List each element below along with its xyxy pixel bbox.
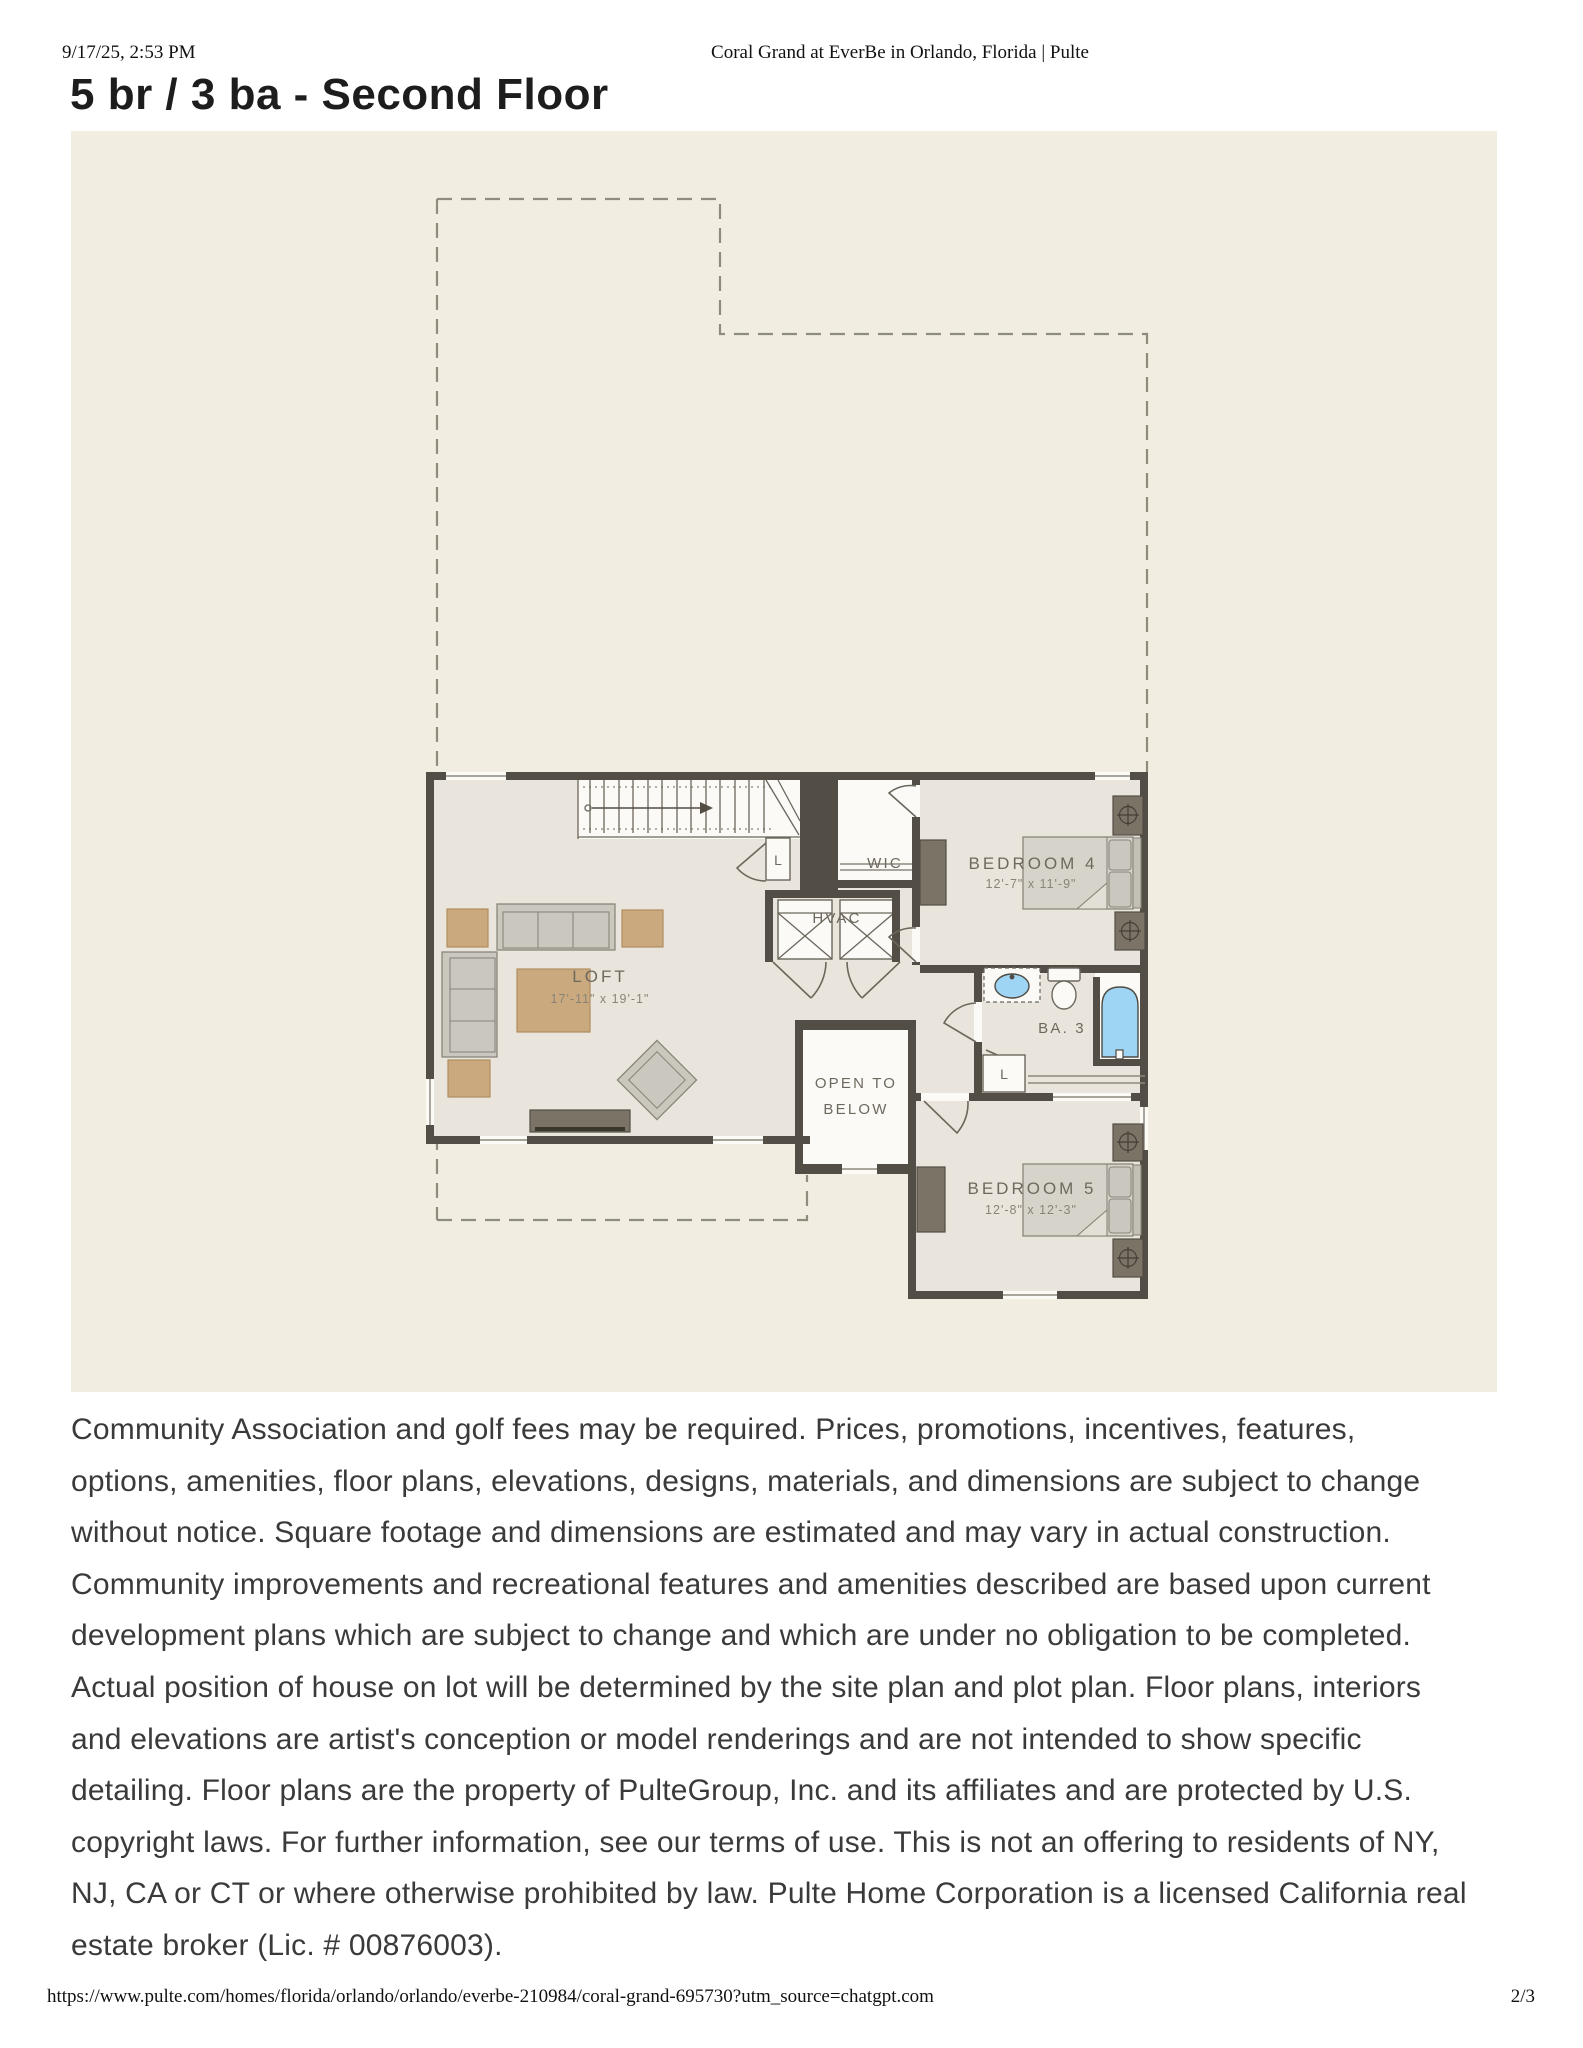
disclaimer-line: options, amenities, floor plans, elevati… bbox=[71, 1456, 1526, 1508]
stairwell bbox=[578, 780, 800, 839]
label-bedroom5: BEDROOM 5 bbox=[967, 1179, 1096, 1198]
open-to-below-void bbox=[803, 1030, 908, 1164]
label-bedroom4: BEDROOM 4 bbox=[968, 854, 1097, 873]
bed-bedroom5 bbox=[1023, 1164, 1141, 1236]
dresser-bedroom4 bbox=[920, 840, 946, 905]
page-title: 5 br / 3 ba - Second Floor bbox=[70, 70, 609, 120]
disclaimer-line: estate broker (Lic. # 00876003). bbox=[71, 1920, 1526, 1972]
label-loft-dims: 17'-11" x 19'-1" bbox=[551, 992, 650, 1006]
sofa bbox=[497, 904, 615, 950]
dashed-footprint-bottom bbox=[437, 1175, 807, 1220]
label-linen-stairs: L bbox=[774, 852, 782, 868]
disclaimer-text: Community Association and golf fees may … bbox=[71, 1404, 1526, 1972]
dashed-footprint-outline bbox=[437, 199, 1147, 772]
disclaimer-line: Community improvements and recreational … bbox=[71, 1559, 1526, 1611]
disclaimer-line: copyright laws. For further information,… bbox=[71, 1817, 1526, 1869]
label-hvac: HVAC bbox=[812, 910, 861, 927]
footer-url: https://www.pulte.com/homes/florida/orla… bbox=[47, 1986, 934, 2008]
disclaimer-line: Community Association and golf fees may … bbox=[71, 1404, 1526, 1456]
label-bedroom5-dims: 12'-8" x 12'-3" bbox=[985, 1203, 1077, 1217]
label-loft: LOFT bbox=[572, 967, 627, 986]
disclaimer-line: Actual position of house on lot will be … bbox=[71, 1662, 1526, 1714]
toilet-bowl bbox=[1052, 981, 1076, 1009]
bathtub bbox=[1102, 987, 1138, 1057]
dresser-bedroom5 bbox=[917, 1167, 945, 1232]
floor-plan-image: LOFT 17'-11" x 19'-1" WIC HVAC BEDROOM 4… bbox=[71, 131, 1497, 1392]
label-bedroom4-dims: 12'-7" x 11'-9" bbox=[986, 877, 1077, 891]
hvac-unit bbox=[778, 900, 832, 959]
end-table-right bbox=[622, 910, 663, 947]
label-bath3: BA. 3 bbox=[1038, 1020, 1086, 1037]
disclaimer-line: and elevations are artist's conception o… bbox=[71, 1714, 1526, 1766]
label-open-to-below-2: BELOW bbox=[823, 1101, 888, 1118]
document-title: Coral Grand at EverBe in Orlando, Florid… bbox=[711, 42, 1089, 64]
disclaimer-line: NJ, CA or CT or where otherwise prohibit… bbox=[71, 1868, 1526, 1920]
sink-faucet bbox=[1010, 975, 1015, 980]
disclaimer-line: development plans which are subject to c… bbox=[71, 1610, 1526, 1662]
toilet-tank bbox=[1048, 968, 1080, 981]
label-linen-bath: L bbox=[1000, 1066, 1008, 1082]
bed-bedroom4 bbox=[1023, 837, 1141, 909]
hvac-unit bbox=[840, 900, 894, 959]
label-open-to-below-1: OPEN TO bbox=[815, 1075, 897, 1092]
print-timestamp: 9/17/25, 2:53 PM bbox=[62, 42, 196, 64]
label-wic: WIC bbox=[867, 855, 903, 872]
tv bbox=[535, 1127, 625, 1131]
footer-page-indicator: 2/3 bbox=[1511, 1986, 1535, 2008]
ottoman-small bbox=[448, 1060, 490, 1097]
end-table-left bbox=[447, 909, 488, 947]
disclaimer-line: detailing. Floor plans are the property … bbox=[71, 1765, 1526, 1817]
disclaimer-line: without notice. Square footage and dimen… bbox=[71, 1507, 1526, 1559]
floor-plan-svg: LOFT 17'-11" x 19'-1" WIC HVAC BEDROOM 4… bbox=[71, 131, 1497, 1392]
tub-faucet bbox=[1116, 1050, 1123, 1059]
